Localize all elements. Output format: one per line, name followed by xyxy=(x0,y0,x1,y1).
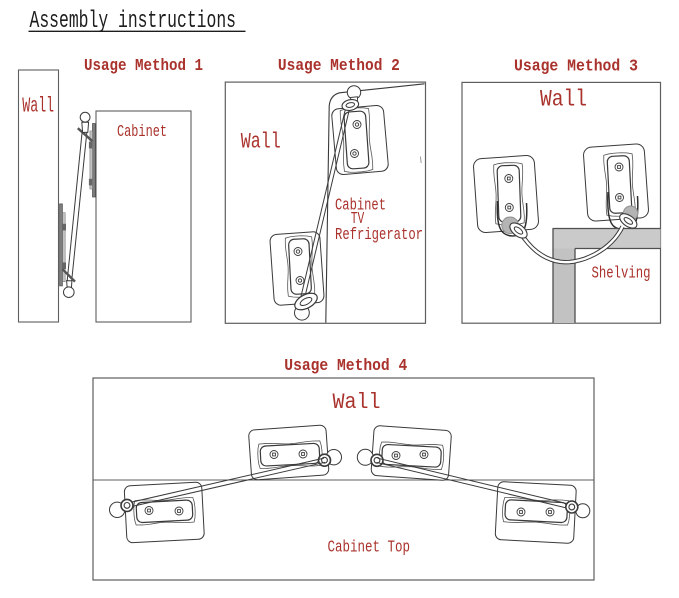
svg-text:Wall: Wall xyxy=(22,95,54,118)
svg-text:Wall: Wall xyxy=(333,390,381,415)
svg-text:Cabinet: Cabinet xyxy=(117,123,167,142)
svg-text:Wall: Wall xyxy=(540,87,587,113)
svg-text:Refrigerator: Refrigerator xyxy=(335,226,423,245)
svg-text:Usage Method 3: Usage Method 3 xyxy=(514,58,638,77)
svg-text:Cabinet Top: Cabinet Top xyxy=(328,539,411,558)
svg-text:Wall: Wall xyxy=(241,129,281,154)
svg-text:Usage Method 1: Usage Method 1 xyxy=(84,57,203,76)
svg-text:Shelving: Shelving xyxy=(592,265,651,284)
svg-text:Usage Method 2: Usage Method 2 xyxy=(278,57,400,76)
svg-text:Usage Method 4: Usage Method 4 xyxy=(284,357,407,376)
